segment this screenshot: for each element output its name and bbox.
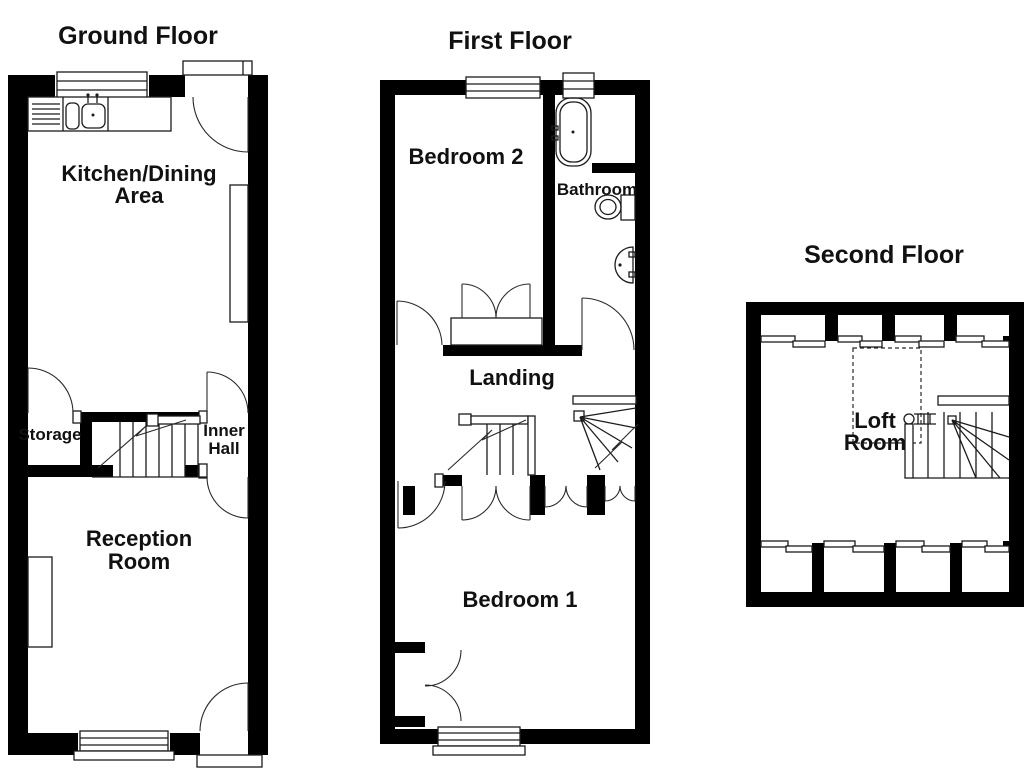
bedroom2-wardrobe [451,284,542,345]
bedroom1-window [433,727,525,755]
landing-staircase-up-icon [573,396,638,470]
loft-staircase-icon [904,396,1009,478]
floorplan-page: Ground Floor [0,0,1024,768]
bedroom2-label: Bedroom 2 [409,144,524,169]
kitchen-entrance-door [183,61,252,152]
inner-hall-label-line2: Hall [208,439,239,458]
kitchen-wall-unit [230,185,248,322]
storage-label: Storage [18,425,81,444]
bedroom2-window [466,77,540,98]
bedroom1-label: Bedroom 1 [463,587,578,612]
reception-label-line2: Room [108,549,170,574]
storage-door [28,368,81,423]
inner-hall-top-door [199,372,248,423]
second-floor-title: Second Floor [804,241,964,269]
first-floor-plan: First Floor [380,27,650,755]
reception-alcove [28,557,52,647]
inner-hall-bottom-door [199,464,248,518]
first-floor-title: First Floor [448,27,572,55]
landing-staircase-down-icon [448,414,535,475]
second-floor-plan: Second Floor [746,241,1024,607]
loft-room-label-line2: Room [844,430,906,455]
floorplan-drawing: Ground Floor [0,0,1024,768]
inner-hall-label-line1: Inner [203,421,245,440]
kitchen-sink-icon [28,93,171,131]
ground-floor-plan: Ground Floor [8,22,268,767]
landing-cupboard-doors [462,486,635,520]
reception-label-line1: Reception [86,526,192,551]
kitchen-dining-label-line2: Area [115,183,165,208]
bedroom2-door [397,301,442,345]
reception-window [74,731,174,760]
ground-floor-title: Ground Floor [58,22,218,50]
bedroom1-closet-doors [425,650,461,721]
bathroom-label: Bathroom [557,180,637,199]
bathroom-door [582,298,634,350]
kitchen-window [55,72,149,99]
bathtub-icon [552,98,591,166]
bathroom-window [563,73,594,98]
washbasin-icon [615,247,635,283]
landing-label: Landing [469,365,555,390]
